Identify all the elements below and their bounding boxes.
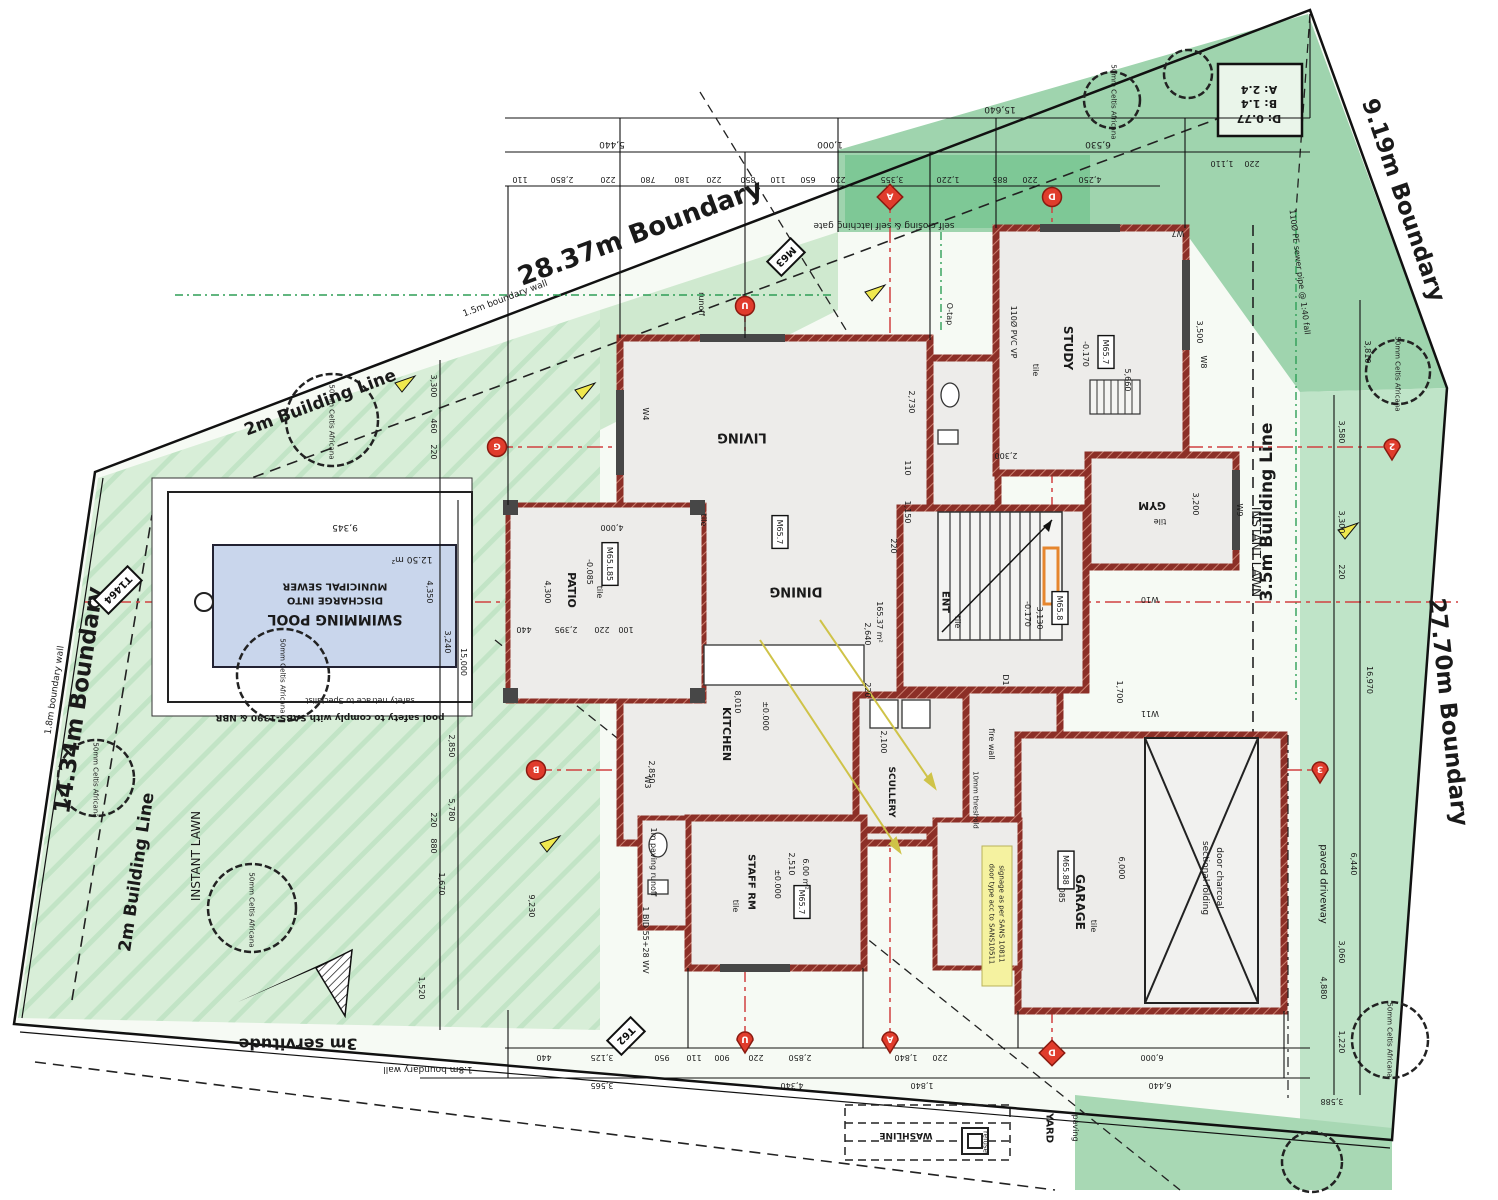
door-label: D1	[1001, 674, 1010, 685]
note-sans-2: signage as per SANS 10811	[998, 865, 1006, 962]
dim-label: 2,100	[879, 731, 888, 754]
wall-note-bottom: 1.8m boundary wall	[383, 1064, 473, 1074]
dim-label: 3,810	[1363, 341, 1372, 364]
dim-label: 110	[903, 460, 912, 475]
tree-label: 50mm Celtis Africana	[1110, 64, 1118, 139]
grid-marker-U: U	[736, 297, 755, 316]
dim-label: 220	[600, 175, 615, 184]
dim-label: 2,640	[863, 623, 872, 646]
tree-label: 50mm Celtis Africana	[1110, 64, 1118, 139]
room-label-dining: DINING	[770, 583, 823, 598]
note-threshold: 10mm threshold	[972, 771, 980, 829]
dim-label: 1,110	[1211, 159, 1234, 168]
dim-label: 4,000	[601, 523, 624, 532]
dim-label: 2,850	[551, 175, 574, 184]
dim-label: 2,300	[995, 451, 1018, 460]
pool-note-2: safety netrace to Specialist	[305, 696, 414, 705]
dim-label: 6,440	[1149, 1081, 1172, 1090]
room-label-ent: ENT	[940, 591, 951, 613]
pool-area: 12.50 m²	[391, 554, 432, 564]
datum-box-label: M65.L85	[605, 547, 614, 581]
dim-label: 2,640	[863, 623, 872, 646]
dim-label: 5,440	[599, 139, 625, 149]
site-plan-svg: 28.37m Boundary9.19m Boundary27.70m Boun…	[0, 0, 1498, 1200]
note-firewall: fire wall	[987, 728, 996, 760]
instant-lawn-right-label: INSTANT LAWN	[1249, 507, 1263, 597]
dim-label: 3,810	[1363, 341, 1372, 364]
dim-label: 5,660	[1123, 369, 1132, 392]
note-pvc-vp: 110Ø PVC VP	[1009, 306, 1019, 359]
door-label: D1	[1001, 674, 1010, 685]
room-label-gym: GYM	[1138, 499, 1166, 512]
dim-label: 5,660	[1123, 369, 1132, 392]
room-label-ent: ENT	[940, 591, 951, 613]
dim-label: 950	[654, 1053, 669, 1062]
dim-label: 110	[512, 175, 527, 184]
dim-label: 3,580	[1337, 421, 1346, 444]
site-plan-drawing: 28.37m Boundary9.19m Boundary27.70m Boun…	[0, 0, 1498, 1200]
dim-label: 2,395	[555, 625, 578, 634]
dim-label: 220	[830, 175, 845, 184]
note-runoff2: runoff	[697, 292, 706, 316]
grid-marker-letter: A	[886, 191, 893, 201]
tree-label: 50mm Celtis Africana	[1386, 1002, 1394, 1077]
pool-sub2: MUNICIPAL SEWER	[282, 581, 387, 592]
dim-label: 16,970	[1365, 666, 1374, 694]
room-label-scullery: SCULLERY	[886, 767, 896, 818]
datum-box-label: M65.7	[797, 890, 806, 915]
room-label-yard: YARD	[1044, 1112, 1055, 1143]
tree-label: 50mm Celtis Africana	[248, 872, 256, 947]
dim-label: 3,200	[1191, 493, 1200, 516]
dim-label: 3,240	[443, 631, 452, 654]
datum-box-label: M65.7	[794, 886, 810, 919]
dim-label: 4,000	[601, 523, 624, 532]
dim-label: 6,000	[1117, 857, 1126, 880]
dim-label: 2,100	[879, 731, 888, 754]
tree-label: 50mm Celtis Africana	[279, 638, 287, 713]
pool-note-2: safety netrace to Specialist	[305, 696, 414, 705]
dim-label: 1,700	[1115, 681, 1124, 704]
level-label: ±0.000	[761, 701, 770, 731]
dim-label: 4,340	[781, 1081, 804, 1090]
dim-label: 15,640	[984, 104, 1016, 114]
grid-marker-letter: B	[532, 764, 539, 774]
dim-label: 4,300	[543, 581, 552, 604]
servitude-label: 3m servitude	[238, 1034, 357, 1053]
finish-tile: tile	[1031, 364, 1040, 377]
dim-label: 2,730	[907, 391, 916, 414]
dim-label: 440	[516, 625, 531, 634]
dim-label: 4,340	[781, 1081, 804, 1090]
dim-label: 8,010	[733, 691, 742, 714]
wall-note-bottom: 1.8m boundary wall	[383, 1064, 473, 1074]
dim-label: 15,000	[459, 648, 468, 676]
room-label-patio: PATIO	[565, 572, 578, 608]
yard-finish: paving	[1071, 1114, 1080, 1141]
dim-label: 3,130	[1035, 607, 1044, 630]
pool-note-1: pool safety to comply with SABS-1390 & N…	[215, 712, 444, 722]
dim-label: 110	[903, 460, 912, 475]
finish-tile: tile	[953, 616, 962, 629]
dim-label: 180	[674, 175, 689, 184]
finish-tile: tile	[731, 900, 740, 913]
dim-label: 110	[770, 175, 785, 184]
dim-label: 1,220	[937, 175, 960, 184]
dim-label: 220	[1244, 159, 1259, 168]
patio-column	[503, 500, 518, 515]
window-label: W7	[1172, 229, 1185, 238]
note-sans-1: door type acc to SANS10511	[988, 864, 996, 965]
grid-marker-letter: D	[1048, 191, 1055, 201]
dim-label: 220	[1337, 564, 1346, 579]
room-label-study: STUDY	[1061, 326, 1075, 371]
dim-label: 1,700	[1115, 681, 1124, 704]
note-runoff2: runoff	[697, 292, 706, 316]
datum-box-label: M65.88	[1061, 855, 1070, 885]
dim-label: 3,060	[1337, 941, 1346, 964]
dim-label: 180	[674, 175, 689, 184]
room-label-living: LIVING	[717, 429, 767, 444]
dim-label: 9,345	[332, 522, 358, 532]
dim-label: 9,230	[527, 895, 536, 918]
dim-label: 4,350	[425, 581, 434, 604]
note-threshold: 10mm threshold	[972, 771, 980, 829]
pool-sub1: DISCHARGE INTO	[287, 595, 383, 606]
dim-label: 220	[748, 1053, 763, 1062]
tree-label: 50mm Celtis Africana	[1394, 336, 1402, 411]
datum-d: D: 0.77	[1237, 112, 1282, 125]
dim-label: 8,010	[733, 691, 742, 714]
dim-label: 460	[429, 418, 438, 433]
dim-label: 3,060	[1337, 941, 1346, 964]
level-label: -0.085	[585, 559, 594, 585]
pool-title: SWIMMING POOL	[267, 611, 402, 627]
note-tap: O-tap	[945, 303, 954, 326]
dim-label: 220	[429, 812, 438, 827]
window-label: W7	[1172, 229, 1185, 238]
datum-a: A: 2.4	[1240, 83, 1277, 96]
dim-label: 220	[429, 444, 438, 459]
dim-label: 1,000	[817, 139, 843, 149]
boundary-label-right: 27.70m Boundary	[1423, 597, 1473, 828]
window-label: W4	[641, 408, 650, 421]
dim-label: 100	[618, 625, 633, 634]
dim-label: 220	[863, 682, 872, 697]
window-label: W8	[1199, 356, 1208, 369]
area-label: 165.37 m²	[875, 601, 884, 643]
datum-b: B: 1.4	[1241, 97, 1277, 110]
pool-sub2: MUNICIPAL SEWER	[282, 581, 387, 592]
dim-label: 3,125	[591, 1053, 614, 1062]
dim-label: 220	[863, 682, 872, 697]
dim-label: 1,150	[903, 501, 912, 524]
dim-label: 3,565	[591, 1081, 614, 1090]
dim-label: 220	[600, 175, 615, 184]
dim-label: 3,300	[1337, 511, 1346, 534]
datum-b: B: 1.4	[1241, 97, 1277, 110]
dim-label: 110	[770, 175, 785, 184]
dim-label: 2,300	[995, 451, 1018, 460]
window-label: W10	[1141, 595, 1159, 604]
room-label-staffrm: STAFF RM	[746, 854, 757, 910]
dim-label: 2,850	[447, 735, 456, 758]
note-firewall: fire wall	[987, 728, 996, 760]
patio-column	[690, 688, 705, 703]
dim-label: 220	[594, 625, 609, 634]
dim-label: 220	[1022, 175, 1037, 184]
dim-label: 6,440	[1149, 1081, 1172, 1090]
datum-box-label: M65.88	[1058, 851, 1074, 889]
dim-label: 1,000	[817, 139, 843, 149]
dim-label: 440	[516, 625, 531, 634]
grid-marker-letter: A	[886, 1034, 893, 1044]
room-label-yard: YARD	[1044, 1112, 1055, 1143]
dim-label: 2,730	[907, 391, 916, 414]
room-label-dining: DINING	[770, 583, 823, 598]
datum-box-label: M65.7	[1098, 336, 1114, 369]
dim-label: 6,000	[1141, 1053, 1164, 1062]
datum-box-label: M65.7	[775, 520, 784, 545]
tree-label: 50mm Celtis Africana	[92, 742, 100, 817]
dim-label: 3,565	[591, 1081, 614, 1090]
dim-label: 3,588	[1321, 1097, 1344, 1106]
tree-label: 50mm Celtis Africana	[1386, 1002, 1394, 1077]
room-label-staffrm: STAFF RM	[746, 854, 757, 910]
datum-box-label: M65.7	[772, 516, 788, 549]
dim-label: 1,840	[895, 1053, 918, 1062]
dim-label: 780	[640, 175, 655, 184]
dim-label: 220	[748, 1053, 763, 1062]
manhole-circle	[195, 593, 213, 611]
dim-label: 3,355	[881, 175, 904, 184]
dim-label: 2,850	[551, 175, 574, 184]
dim-label: 440	[536, 1053, 551, 1062]
tree-label: 50mm Celtis Africana	[328, 384, 336, 459]
note-garage-door-2: door charcoal	[1214, 847, 1224, 908]
dim-label: 2,510	[787, 853, 796, 876]
level-label: -0.170	[1081, 341, 1090, 367]
note-garage-door-2: door charcoal	[1214, 847, 1224, 908]
finish-tile: tile	[595, 586, 604, 599]
finish-tile: tile	[1089, 920, 1098, 933]
dim-label: 1,670	[437, 873, 446, 896]
dim-label: 850	[740, 175, 755, 184]
dim-label: 2,850	[789, 1053, 812, 1062]
grid-marker-letter: 3	[1317, 764, 1323, 774]
dim-label: 950	[654, 1053, 669, 1062]
dim-label: 6,530	[1085, 139, 1111, 149]
finish-tile: tile	[1154, 517, 1167, 526]
dim-label: 3,130	[1035, 607, 1044, 630]
servitude-label: 3m servitude	[238, 1034, 357, 1053]
wc-fixture	[941, 383, 959, 407]
window-label: W8	[1199, 356, 1208, 369]
dim-label: 110	[686, 1053, 701, 1062]
dim-label: 1,840	[895, 1053, 918, 1062]
dim-label: 3,500	[1195, 321, 1204, 344]
dim-label: 2,850	[647, 761, 656, 784]
dim-label: 3,355	[881, 175, 904, 184]
note-driveway: paved driveway	[1318, 844, 1329, 924]
dim-label: 3,580	[1337, 421, 1346, 444]
note-tap: O-tap	[945, 303, 954, 326]
tree-label: 50mm Celtis Africana	[1394, 336, 1402, 411]
dim-label: 220	[1022, 175, 1037, 184]
note-driveway: paved driveway	[1318, 844, 1329, 924]
pool-area: 12.50 m²	[391, 554, 432, 564]
dim-label: 9,345	[332, 522, 358, 532]
dim-label: 1,840	[911, 1081, 934, 1090]
area-label: 6.00 m²	[801, 858, 810, 889]
tree-label: 50mm Celtis Africana	[279, 638, 287, 713]
pool-sub1: DISCHARGE INTO	[287, 595, 383, 606]
dim-label: 220	[429, 444, 438, 459]
room-label-kitchen: KITCHEN	[720, 707, 733, 761]
datum-box-label: M65.L85	[602, 543, 618, 586]
washline-label: WASHLINE	[879, 1130, 932, 1140]
dim-label: 220	[932, 1053, 947, 1062]
dim-label: 5,780	[447, 799, 456, 822]
room-label-patio: PATIO	[565, 572, 578, 608]
dim-label: 885	[992, 175, 1007, 184]
dim-label: 6,000	[1117, 857, 1126, 880]
finish-tile: tile	[1089, 920, 1098, 933]
level-label: ±0.000	[773, 869, 782, 899]
dim-label: 16,970	[1365, 666, 1374, 694]
dim-label: 100	[618, 625, 633, 634]
datum-box-label: M65.8	[1052, 592, 1068, 625]
room-label-garage: GARAGE	[1073, 874, 1087, 930]
level-label: ±0.000	[761, 701, 770, 731]
tree-label: 50mm Celtis Africana	[92, 742, 100, 817]
dim-label: 2,850	[647, 761, 656, 784]
dim-label: 1,520	[417, 977, 426, 1000]
tree-label: 50mm Celtis Africana	[248, 872, 256, 947]
note-runoff: 1m paving runoff	[649, 828, 658, 897]
level-label: -0.170	[1023, 601, 1032, 627]
dim-label: 220	[932, 1053, 947, 1062]
dim-label: 900	[714, 1053, 729, 1062]
basin-fixture	[938, 430, 958, 444]
dim-label: 220	[594, 625, 609, 634]
dim-label: 110	[686, 1053, 701, 1062]
level-label: -0.085	[585, 559, 594, 585]
note-gate: self closing & self latching gate	[813, 220, 955, 230]
finish-tile: tile	[1031, 364, 1040, 377]
dim-label: 220	[889, 538, 898, 553]
dim-label: 1,150	[903, 501, 912, 524]
dim-label: 3,300	[429, 375, 438, 398]
dim-label: 1,840	[911, 1081, 934, 1090]
dim-label: 1,220	[937, 175, 960, 184]
window-label: W4	[641, 408, 650, 421]
grid-marker-letter: D	[1048, 1047, 1055, 1057]
datum-a: A: 2.4	[1240, 83, 1277, 96]
dim-label: 650	[800, 175, 815, 184]
level-label: -0.170	[1023, 601, 1032, 627]
dim-label: 1,520	[417, 977, 426, 1000]
window-label: W9	[1235, 504, 1244, 517]
dim-label: 6,440	[1349, 853, 1358, 876]
dim-label: 1,220	[1337, 1031, 1346, 1054]
note-bid: 1 BID 55+28 WV	[641, 906, 650, 974]
dim-label: 9,230	[527, 895, 536, 918]
dim-label: 220	[429, 812, 438, 827]
dim-label: 440	[536, 1053, 551, 1062]
grid-marker-letter: 2	[1389, 441, 1395, 451]
dim-label: 220	[706, 175, 721, 184]
level-label: ±0.000	[773, 869, 782, 899]
boundary-label-right: 27.70m Boundary	[1423, 597, 1473, 828]
dim-label: 220	[706, 175, 721, 184]
dim-label: 885	[992, 175, 1007, 184]
dim-label: 4,350	[425, 581, 434, 604]
room-label-garage: GARAGE	[1073, 874, 1087, 930]
dim-label: 3,588	[1321, 1097, 1344, 1106]
dim-label: 15,000	[459, 648, 468, 676]
yard-finish: paving	[1071, 1114, 1080, 1141]
note-gate: self closing & self latching gate	[813, 220, 955, 230]
dim-label: 850	[740, 175, 755, 184]
dim-label: 3,240	[443, 631, 452, 654]
finish-tile: tile	[731, 900, 740, 913]
dim-label: 3,300	[1337, 511, 1346, 534]
pool-title: SWIMMING POOL	[267, 611, 402, 627]
dim-label: 220	[1244, 159, 1259, 168]
dim-label: 650	[800, 175, 815, 184]
datum-box-label: M65.8	[1055, 596, 1064, 621]
note-pvc-vp: 110Ø PVC VP	[1009, 306, 1019, 359]
window-label: W11	[1141, 709, 1159, 718]
dim-label: 3,500	[1195, 321, 1204, 344]
dim-label: 6,530	[1085, 139, 1111, 149]
dim-label: 1,670	[437, 873, 446, 896]
sans-note-box	[982, 846, 1012, 986]
dim-label: 780	[640, 175, 655, 184]
finish-tile: tile	[953, 616, 962, 629]
dim-label: 4,250	[1079, 175, 1102, 184]
instant-lawn-left-label: INSTANT LAWN	[189, 811, 203, 901]
dim-label: 2,850	[789, 1053, 812, 1062]
area-label: 165.37 m²	[875, 601, 884, 643]
window-label: W11	[1141, 709, 1159, 718]
dim-label: 220	[830, 175, 845, 184]
dim-label: 3,200	[1191, 493, 1200, 516]
dim-label: 5,440	[599, 139, 625, 149]
dim-label: 2,395	[555, 625, 578, 634]
note-garage-door-1: sectional folding	[1200, 841, 1210, 915]
dim-label: 220	[889, 538, 898, 553]
datum-d: D: 0.77	[1237, 112, 1282, 125]
grid-marker-D: D	[1043, 188, 1062, 207]
patio-column	[503, 688, 518, 703]
finish-tile: tile	[699, 514, 708, 527]
dim-label: 3,125	[591, 1053, 614, 1062]
note-sans-1: door type acc to SANS10511	[988, 864, 996, 965]
grid-marker-letter: U	[741, 1034, 748, 1044]
level-label: -0.170	[1081, 341, 1090, 367]
dim-label: 3,300	[429, 375, 438, 398]
dim-label: 6,000	[1141, 1053, 1164, 1062]
dim-label: 4,880	[1319, 977, 1328, 1000]
finish-tile: tile	[699, 514, 708, 527]
dim-label: 4,300	[543, 581, 552, 604]
refuse-label: refuse	[982, 1131, 990, 1153]
note-garage-door-1: sectional folding	[1200, 841, 1210, 915]
dim-label: 15,640	[984, 104, 1016, 114]
dim-label: 4,880	[1319, 977, 1328, 1000]
